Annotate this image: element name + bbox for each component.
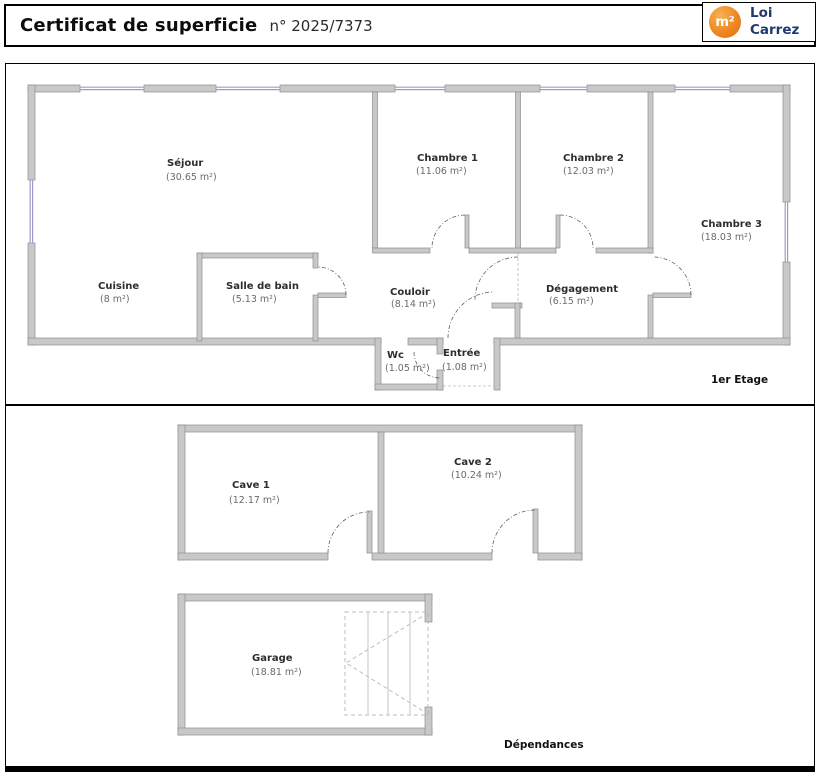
room-name-salle-de-bain: Salle de bain (226, 281, 299, 292)
room-name-chambre2: Chambre 2 (563, 153, 624, 164)
room-labels-floor2: Cave 1 (12.17 m²) Cave 2 (10.24 m²) Gara… (229, 457, 584, 751)
room-area-cuisine: (8 m²) (100, 294, 130, 305)
m2-logo-icon: m² (709, 6, 741, 38)
room-area-degagement: (6.15 m²) (549, 296, 594, 307)
floorplan-dependances: Cave 1 (12.17 m²) Cave 2 (10.24 m²) Gara… (6, 406, 814, 764)
windows (30, 87, 787, 262)
room-area-cave1: (12.17 m²) (229, 495, 280, 506)
header-bar: Certificat de superficie n° 2025/7373 (4, 4, 816, 47)
room-name-sejour: Séjour (167, 157, 203, 169)
room-name-chambre3: Chambre 3 (701, 219, 762, 230)
room-area-couloir: (8.14 m²) (391, 299, 436, 310)
room-area-sejour: (30.65 m²) (166, 172, 217, 183)
garage-door (345, 612, 428, 715)
floor2-caption: Dépendances (504, 739, 584, 751)
document-number: n° 2025/7373 (269, 17, 372, 35)
caves-door-arcs (328, 510, 535, 553)
room-name-wc: Wc (387, 350, 404, 361)
room-name-entree: Entrée (443, 347, 480, 359)
room-area-chambre2: (12.03 m²) (563, 166, 614, 177)
room-area-entree: (1.08 m²) (442, 362, 487, 373)
room-area-salle-de-bain: (5.13 m²) (232, 294, 277, 305)
room-area-cave2: (10.24 m²) (451, 470, 502, 481)
loi-carrez-logo: m² Loi Carrez (702, 2, 816, 42)
logo-line1: Loi (750, 5, 799, 22)
room-name-cave2: Cave 2 (454, 457, 492, 468)
floorplan-first-floor: Séjour (30.65 m²) Chambre 1 (11.06 m²) C… (6, 64, 814, 404)
room-area-chambre1: (11.06 m²) (416, 166, 467, 177)
room-name-degagement: Dégagement (546, 283, 618, 295)
exterior-walls (28, 85, 790, 390)
m2-logo-symbol: m² (715, 15, 734, 30)
room-name-cave1: Cave 1 (232, 480, 270, 491)
logo-text: Loi Carrez (750, 5, 799, 39)
room-name-couloir: Couloir (390, 287, 430, 298)
room-area-wc: (1.05 m²) (385, 363, 430, 374)
room-area-garage: (18.81 m²) (251, 667, 302, 678)
room-name-cuisine: Cuisine (98, 281, 139, 292)
page-title: Certificat de superficie (20, 15, 257, 36)
room-name-chambre1: Chambre 1 (417, 153, 478, 164)
floor1-caption: 1er Etage (711, 374, 768, 386)
logo-line2: Carrez (750, 22, 799, 39)
room-area-chambre3: (18.03 m²) (701, 232, 752, 243)
caves-walls (178, 425, 582, 560)
garage-walls (178, 594, 432, 735)
room-name-garage: Garage (252, 653, 293, 664)
